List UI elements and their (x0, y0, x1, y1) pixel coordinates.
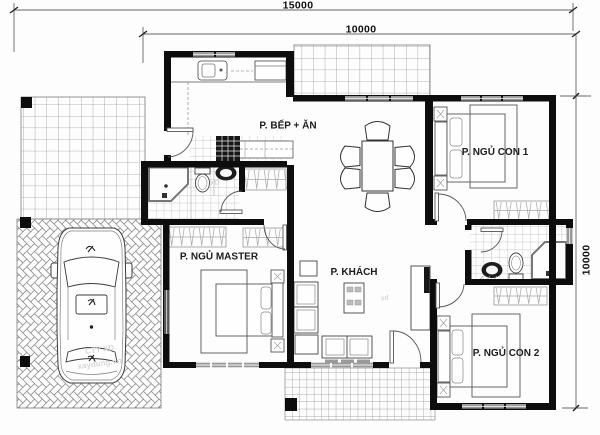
svg-text:15000: 15000 (283, 0, 314, 12)
svg-text:xd: xd (380, 294, 389, 302)
svg-text:P. NGỦ MASTER: P. NGỦ MASTER (180, 250, 259, 263)
svg-text:XD: XD (209, 179, 220, 187)
svg-text:P. BẾP + ĂN: P. BẾP + ĂN (259, 119, 316, 132)
svg-text:P. KHÁCH: P. KHÁCH (330, 265, 377, 278)
svg-text:10000: 10000 (581, 245, 593, 276)
svg-text:P. NGỦ CON 1: P. NGỦ CON 1 (462, 145, 529, 158)
svg-text:P. NGỦ CON 2: P. NGỦ CON 2 (473, 346, 540, 359)
svg-text:10000: 10000 (346, 24, 377, 36)
